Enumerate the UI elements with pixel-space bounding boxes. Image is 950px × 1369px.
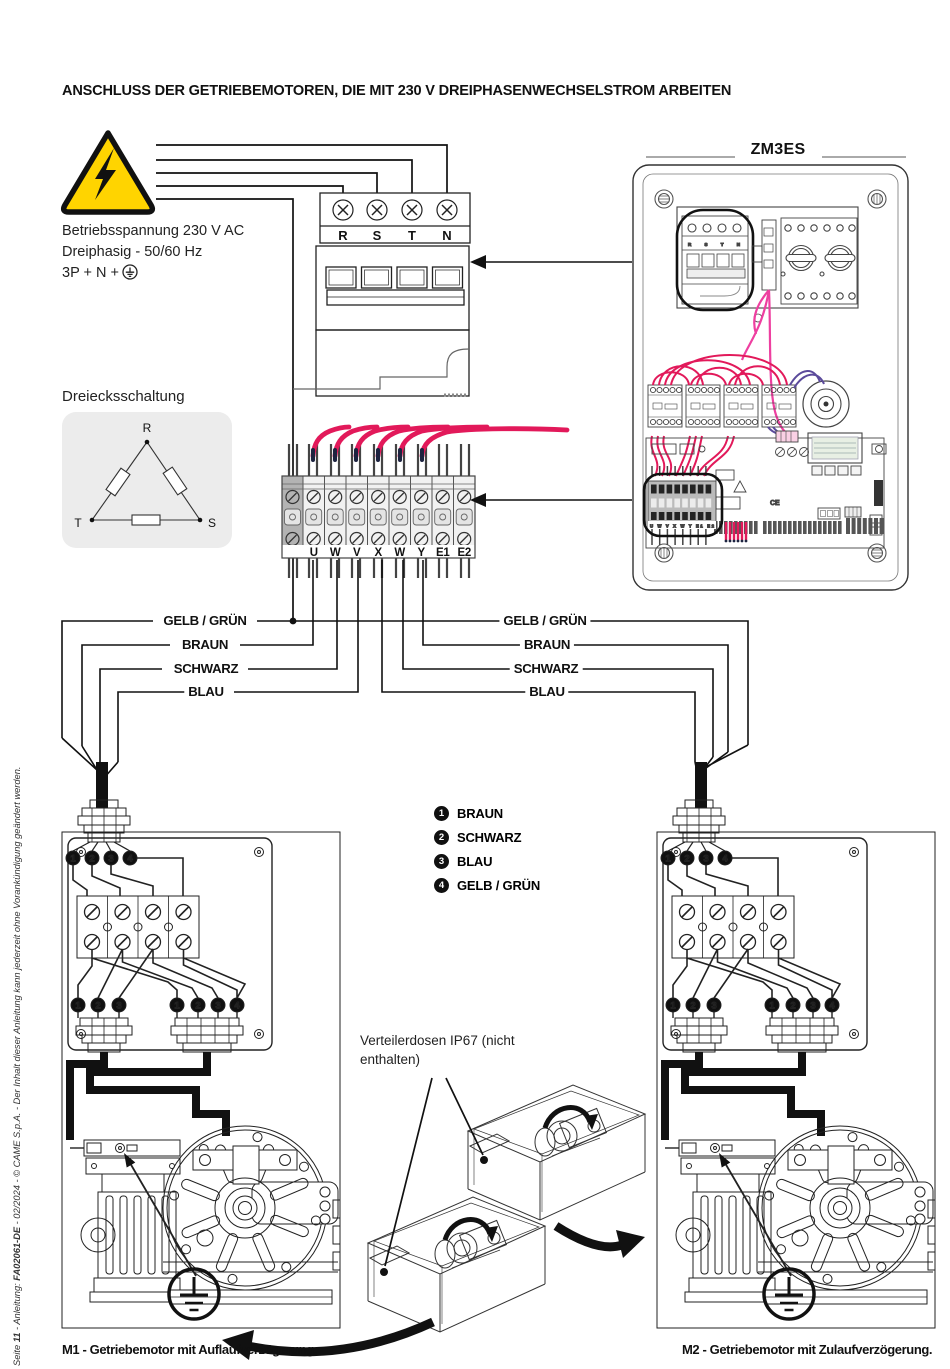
distribution-box-note: Verteilerdosen IP67 (nicht enthalten): [360, 1031, 515, 1069]
caption-m1: M1 - Getriebemotor mit Auflaufverzögerun…: [62, 1342, 317, 1357]
svg-text:R: R: [338, 228, 348, 243]
power-spec-line1: Betriebsspannung 230 V AC: [62, 221, 244, 242]
legend-row: 2SCHWARZ: [434, 825, 540, 849]
panel-rotary-switches: [781, 218, 857, 304]
legend-marker-1: 1: [434, 806, 449, 821]
terminal-strip: U W V X W Y E1 E2: [282, 444, 475, 578]
panel-top-assembly: R S T N: [677, 207, 858, 322]
panel-mini-strip: U W V X W Y E1 E2: [644, 466, 722, 545]
svg-text:X: X: [375, 547, 383, 559]
svg-text:R S T N: R S T N: [688, 242, 740, 247]
panel-name: ZM3ES: [722, 141, 834, 159]
wire-label-left-blau: BLAU: [184, 684, 227, 699]
svg-text:V: V: [353, 547, 361, 559]
wire-ferrules: [313, 450, 422, 460]
manual-page: 1 2 3 4: [0, 0, 950, 1369]
wire-label-left-schwarz: SCHWARZ: [170, 661, 243, 676]
svg-text:W: W: [394, 547, 405, 559]
svg-text:R: R: [143, 421, 152, 435]
panel-mini-breaker: R S T N: [677, 210, 753, 310]
high-voltage-warning-icon: [64, 133, 153, 212]
svg-text:T: T: [408, 228, 416, 243]
svg-text:E1: E1: [436, 547, 450, 559]
legend-row: 4GELB / GRÜN: [434, 873, 540, 897]
svg-text:CE: CE: [770, 500, 780, 507]
motor-wire-routing: [62, 560, 748, 778]
legend-marker-4: 4: [434, 878, 449, 893]
power-spec-line2: Dreiphasig - 50/60 Hz: [62, 242, 244, 263]
wire-label-left-gelb-gruen: GELB / GRÜN: [159, 613, 250, 628]
page-title: ANSCHLUSS DER GETRIEBEMOTOREN, DIE MIT 2…: [62, 82, 731, 99]
wire-label-right-braun: BRAUN: [520, 637, 574, 652]
panel-magenta-wires: [742, 290, 788, 435]
zm3es-panel: R S T N: [633, 157, 908, 590]
wire-label-left-braun: BRAUN: [178, 637, 232, 652]
breaker-callout-outline: [677, 210, 753, 310]
delta-connection-diagram: R T S: [62, 412, 232, 548]
wire-label-right-schwarz: SCHWARZ: [510, 661, 583, 676]
legend-row: 1BRAUN: [434, 801, 540, 825]
svg-text:S: S: [373, 228, 382, 243]
panel-leader-arrows: [470, 255, 632, 507]
delta-caption: Dreiecksschaltung: [62, 388, 185, 405]
svg-text:E2: E2: [457, 547, 470, 559]
main-breaker: [293, 193, 470, 396]
m1-assembly: [62, 800, 340, 1328]
m2-supply-cable: [695, 762, 707, 808]
svg-text:U W V X W Y E1 E2: U W V X W Y E1 E2: [650, 524, 715, 529]
power-spec: Betriebsspannung 230 V AC Dreiphasig - 5…: [62, 221, 244, 284]
contactor-jumper-wires: [653, 355, 787, 385]
m1-supply-cable: [96, 762, 108, 808]
panel-buzzer: [803, 381, 849, 427]
wire-color-legend: 1BRAUN 2SCHWARZ 3BLAU 4GELB / GRÜN: [434, 801, 540, 897]
caption-m2: M2 - Getriebemotor mit Zulaufverzögerung…: [682, 1342, 932, 1357]
legend-marker-2: 2: [434, 830, 449, 845]
svg-text:Y: Y: [418, 547, 426, 559]
page-footer-vertical: Seite 11 - Anleitung: FA02061-DE - 02/20…: [12, 767, 22, 1366]
legend-marker-3: 3: [434, 854, 449, 869]
wiring-diagram-canvas: 1 2 3 4: [0, 0, 950, 1369]
svg-text:U: U: [310, 547, 318, 559]
wire-label-right-blau: BLAU: [525, 684, 568, 699]
power-spec-line3: 3P + N +: [62, 263, 244, 284]
m2-assembly: [657, 800, 935, 1328]
wire-label-right-gelb-gruen: GELB / GRÜN: [499, 613, 590, 628]
svg-text:N: N: [442, 228, 451, 243]
earth-junction-dot: [290, 618, 297, 625]
svg-text:T: T: [74, 516, 82, 530]
distribution-box-lower: [368, 1197, 545, 1332]
legend-row: 3BLAU: [434, 849, 540, 873]
earth-symbol-icon: [122, 264, 138, 280]
svg-text:S: S: [208, 516, 216, 530]
distribution-box-upper: [468, 1085, 645, 1220]
svg-text:W: W: [330, 547, 341, 559]
